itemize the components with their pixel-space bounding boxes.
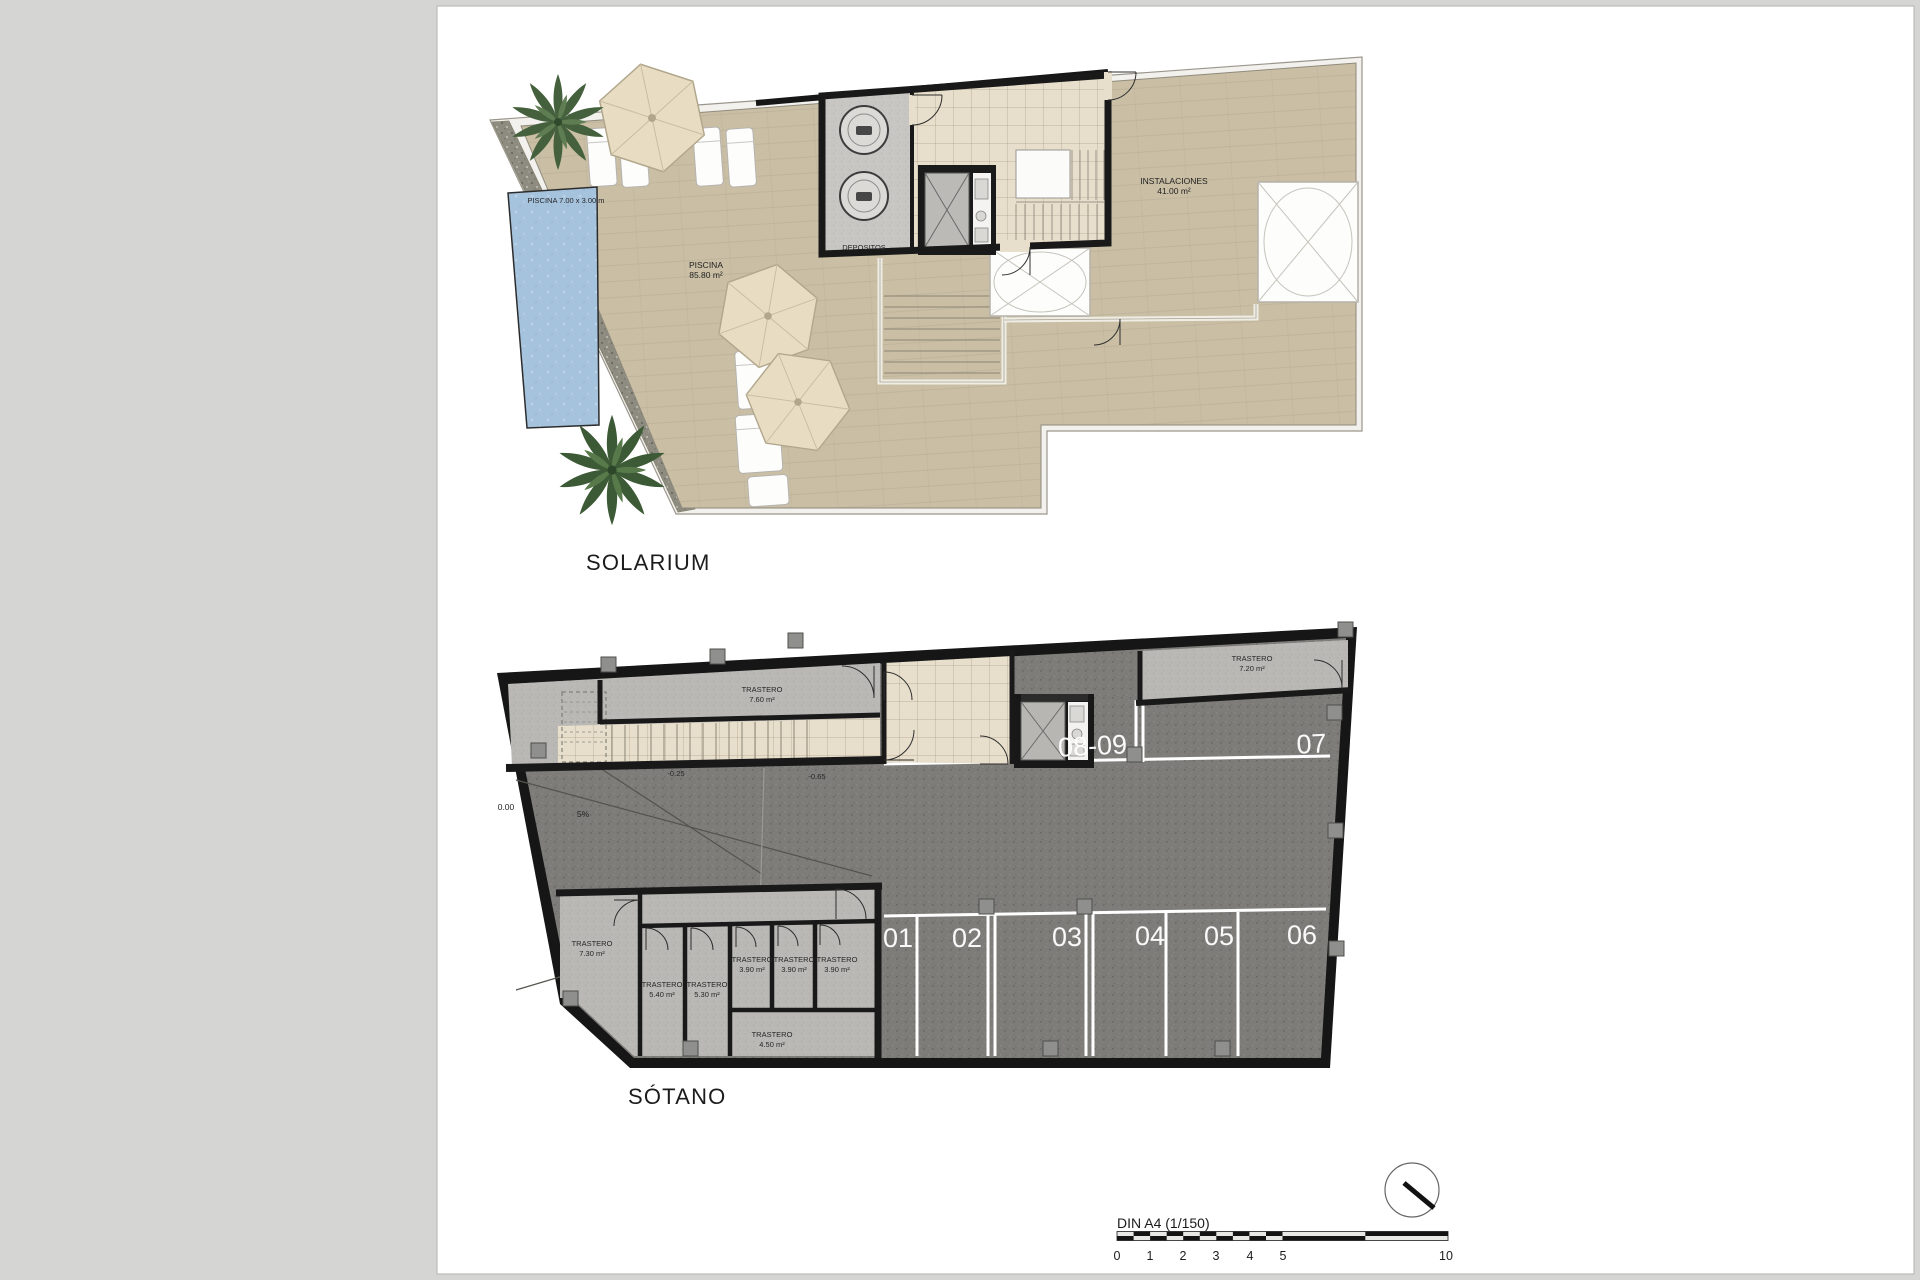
trastero-label: TRASTERO [572, 939, 613, 948]
trastero-label: TRASTERO [752, 1030, 793, 1039]
patio-shaft [990, 248, 1090, 316]
trastero-label: TRASTERO [1232, 654, 1273, 663]
parking-spot-label: 01 [883, 923, 913, 953]
trastero-area: 4.50 m² [759, 1040, 785, 1049]
parking-spot-label: 02 [952, 923, 982, 953]
door-gap [909, 95, 915, 125]
parking-spot-label: 07 [1296, 728, 1328, 760]
level-label: 0.00 [498, 802, 515, 812]
parking-spot-label: 05 [1204, 921, 1234, 951]
instalaciones-area-label: 41.00 m² [1157, 186, 1191, 196]
trastero-area: 5.40 m² [649, 990, 675, 999]
scale-tick-label: 4 [1247, 1249, 1254, 1263]
patio-shaft [1258, 182, 1358, 302]
scale-tick-label: 0 [1114, 1249, 1121, 1263]
door-gap [1000, 240, 1030, 252]
parking-spot-label: 04 [1135, 921, 1165, 951]
elevator-symbol [918, 165, 996, 255]
drawing-sheet: PISCINA 7.00 x 3.00 m [0, 0, 1920, 1280]
trastero-label: TRASTERO [774, 955, 815, 964]
parking-spot-label: 06 [1287, 920, 1317, 950]
instalaciones-name-label: INSTALACIONES [1140, 176, 1208, 186]
trastero-area: 7.30 m² [579, 949, 605, 958]
scale-tick-label: 2 [1180, 1249, 1187, 1263]
scale-tick-label: 3 [1213, 1249, 1220, 1263]
water-tank-icon [840, 172, 888, 220]
trastero-label: TRASTERO [817, 955, 858, 964]
pool-dims-label: PISCINA 7.00 x 3.00 m [527, 196, 604, 205]
trastero-label: TRASTERO [642, 980, 683, 989]
sotano-title: SÓTANO [628, 1084, 726, 1109]
trastero-label: TRASTERO [732, 955, 773, 964]
trastero-area: 3.90 m² [781, 965, 807, 974]
scale-title: DIN A4 (1/150) [1117, 1215, 1210, 1231]
scale-tick-label: 10 [1439, 1249, 1453, 1263]
pool-area-label: 85.80 m² [689, 270, 723, 280]
level-label: -0.65 [808, 772, 825, 781]
trastero-area: 7.60 m² [749, 695, 775, 704]
north-arrow-icon [1385, 1163, 1439, 1217]
trastero-area: 3.90 m² [824, 965, 850, 974]
pool-name-label: PISCINA [689, 260, 723, 270]
slope-label: 5% [577, 809, 590, 819]
trastero-area: 3.90 m² [739, 965, 765, 974]
scale-tick-label: 5 [1280, 1249, 1287, 1263]
trastero-label: TRASTERO [687, 980, 728, 989]
water-tank-icon [840, 106, 888, 154]
level-label: -0.25 [667, 769, 684, 778]
trastero-area: 5.30 m² [694, 990, 720, 999]
hallway [884, 650, 1012, 764]
trastero-area: 7.20 m² [1239, 664, 1265, 673]
scale-tick-label: 1 [1147, 1249, 1154, 1263]
door-gap [1104, 72, 1112, 100]
parking-spot-label: 08-09 [1057, 729, 1128, 763]
solarium-title: SOLARIUM [586, 550, 711, 575]
floorplan-svg: PISCINA 7.00 x 3.00 m [0, 0, 1920, 1280]
depositos-label: DEPOSITOS [842, 243, 886, 252]
parking-spot-label: 03 [1052, 922, 1082, 952]
sotano-plan: TRASTERO 7.60 m² [497, 622, 1357, 1109]
trastero-label: TRASTERO [742, 685, 783, 694]
